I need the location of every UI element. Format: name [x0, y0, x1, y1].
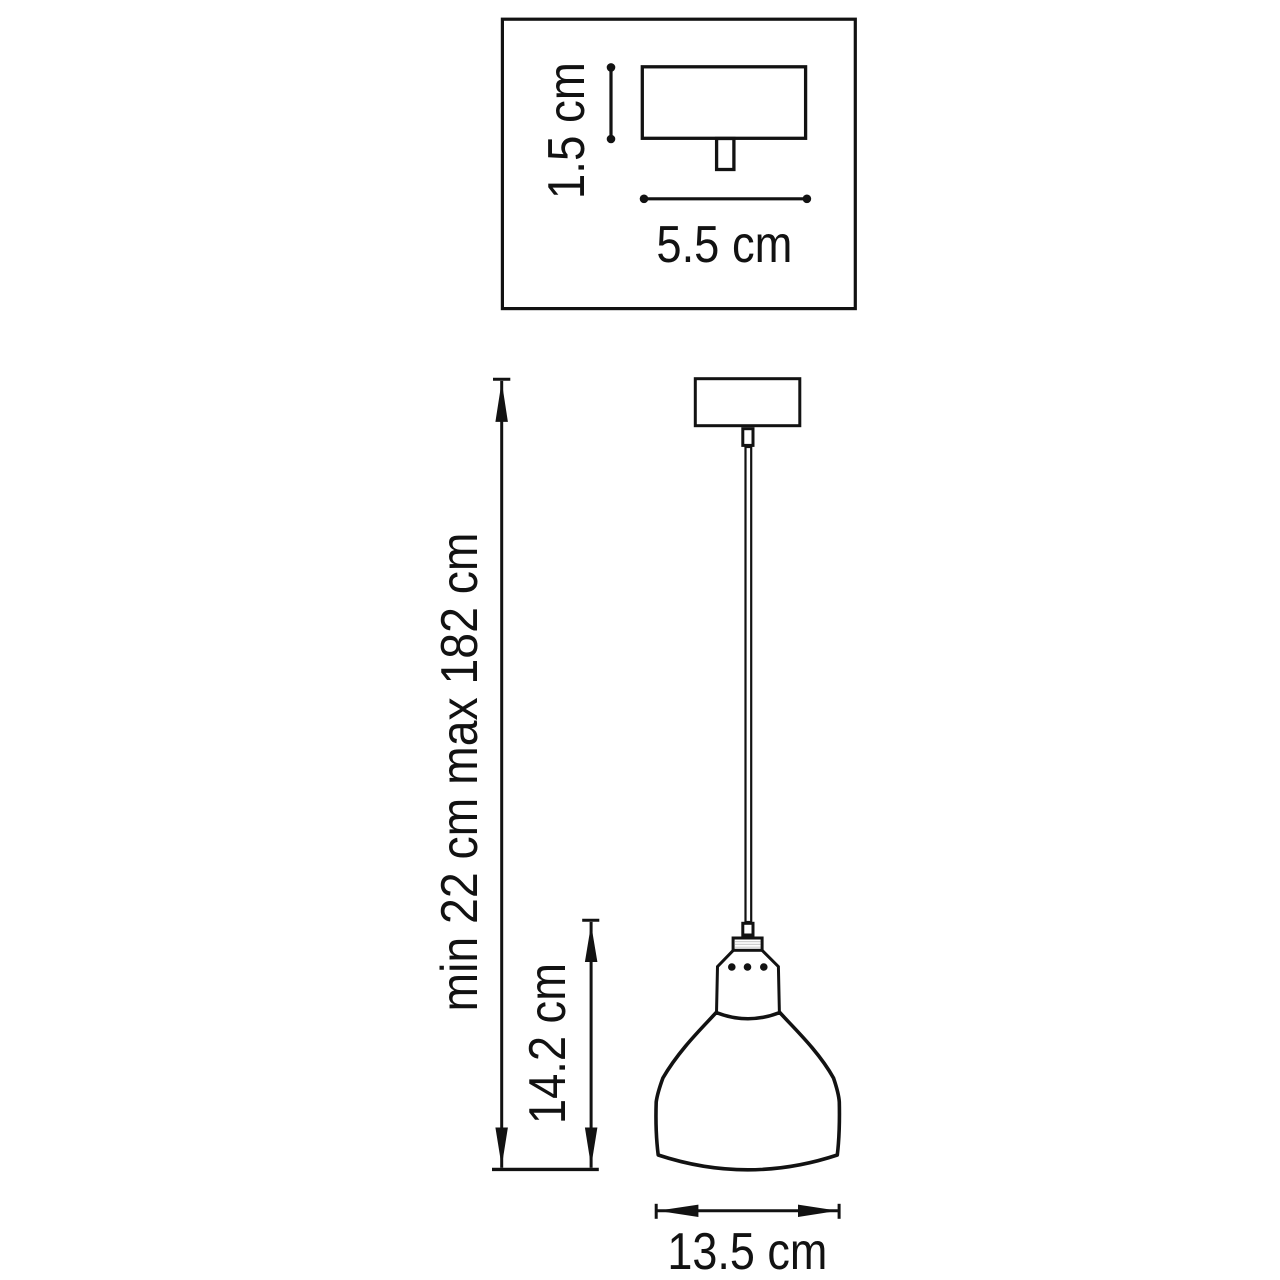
svg-text:1.5 cm: 1.5 cm	[538, 62, 596, 199]
svg-text:13.5 cm: 13.5 cm	[667, 1223, 827, 1280]
svg-text:5.5 cm: 5.5 cm	[656, 216, 792, 274]
svg-text:14.2 cm: 14.2 cm	[519, 963, 577, 1124]
svg-text:min 22 cm max 182 cm: min 22 cm max 182 cm	[431, 533, 489, 1012]
